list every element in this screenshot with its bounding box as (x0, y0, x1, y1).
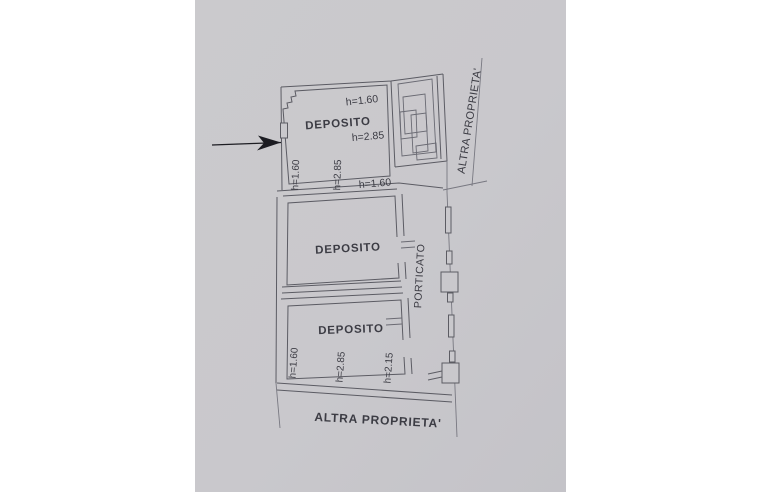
floor-plan-drawing: DEPOSITO h=1.60 h=2.85 h=1.60 h=2.85 h=1… (0, 0, 764, 492)
column (448, 293, 454, 302)
height-label-bottom-left: h=1.60 (288, 347, 301, 379)
room-label-deposito-bottom: DEPOSITO (318, 323, 384, 337)
column (450, 351, 456, 362)
pillar (441, 272, 458, 292)
pillar (442, 363, 459, 383)
column (447, 251, 453, 264)
scanned-floor-plan-page: DEPOSITO h=1.60 h=2.85 h=1.60 h=2.85 h=1… (0, 0, 764, 492)
height-label-left-inner-vertical: h=2.85 (332, 159, 344, 191)
height-label-left-vertical: h=1.60 (290, 159, 302, 191)
column (446, 207, 452, 233)
height-label-bottom-right: h=2.15 (383, 352, 396, 384)
height-label-bottom-middle: h=2.85 (335, 351, 348, 383)
column (449, 315, 455, 337)
wall-notch (281, 123, 288, 138)
